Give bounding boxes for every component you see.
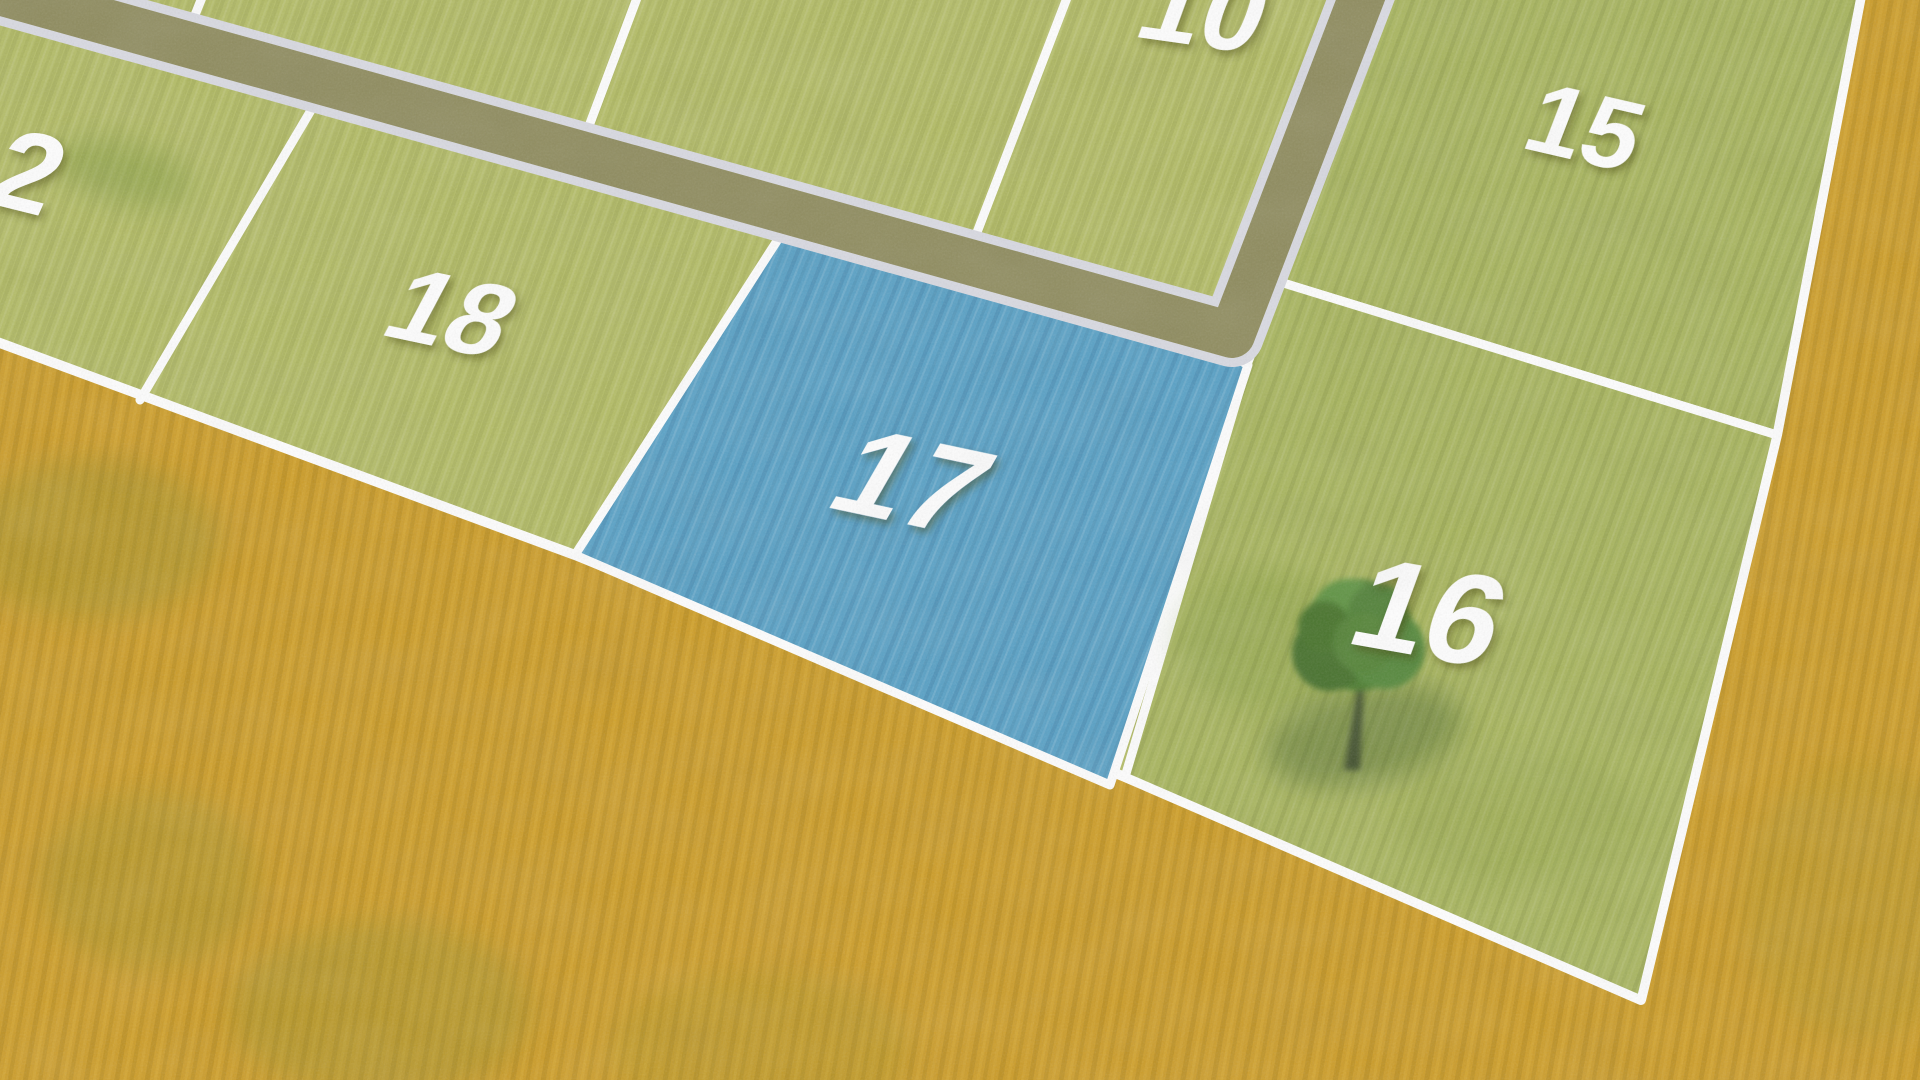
- aerial-plot-map: 2 10 15 16 17 18: [0, 0, 1920, 1080]
- grain-overlay: [0, 0, 1920, 1080]
- map-canvas: 2 10 15 16 17 18: [0, 0, 1920, 1080]
